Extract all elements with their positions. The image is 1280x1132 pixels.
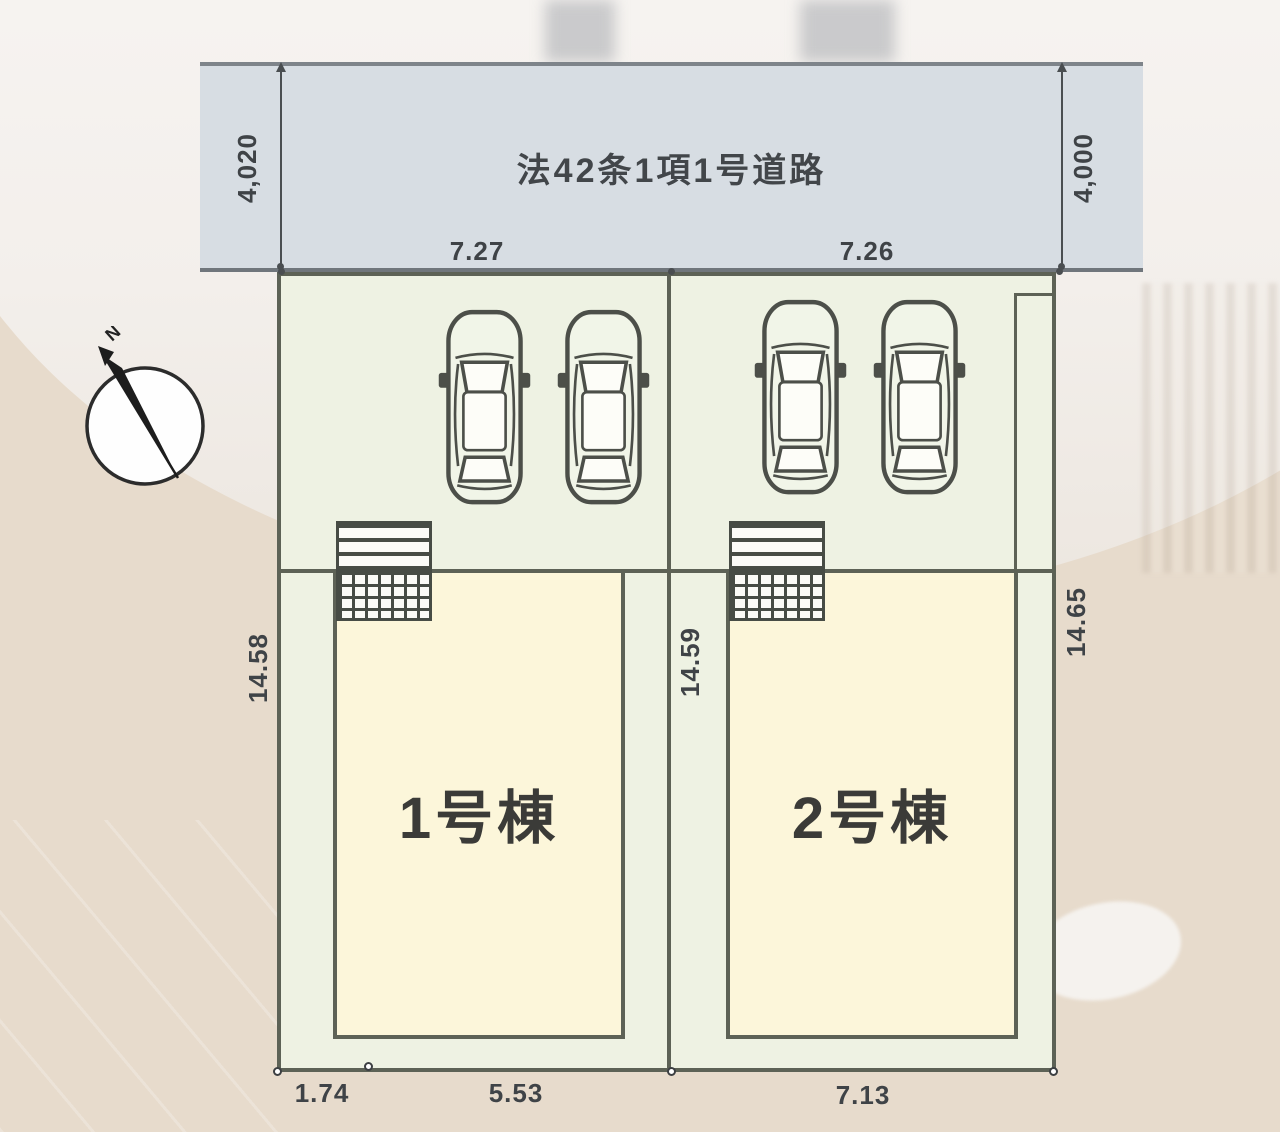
background-chair-leg [800, 0, 895, 62]
survey-point [1056, 268, 1063, 275]
background-chair-leg [545, 0, 615, 62]
dim-frontage-lot2: 7.26 [817, 234, 917, 268]
setback-strip-line-vertical [1014, 293, 1017, 573]
car-icon [753, 288, 848, 508]
car-icon [872, 288, 967, 508]
north-arrow-icon: N [78, 326, 213, 491]
entrance-porch-hatch-lot2 [729, 569, 825, 621]
entrance-steps-lot2 [729, 521, 825, 569]
road-label: 法42条1項1号道路 [200, 66, 1143, 268]
dim-depth-left: 14.58 [208, 608, 308, 728]
building-1-label: 1号棟 [399, 771, 559, 855]
survey-point-ring [1049, 1067, 1058, 1076]
survey-point-ring [667, 1067, 676, 1076]
setback-strip-line-horizontal [1014, 293, 1056, 296]
survey-point [278, 268, 285, 275]
building-1: 1号棟 [333, 569, 625, 1039]
road-band: 法42条1項1号道路 [200, 62, 1143, 272]
entrance-steps-lot1 [336, 521, 432, 569]
building-2: 2号棟 [726, 569, 1018, 1039]
background-floor-lines [0, 820, 300, 1132]
car-icon [437, 298, 532, 518]
building-2-label: 2号棟 [792, 771, 952, 855]
site-plan-screenshot: 法42条1項1号道路 1号棟 2号棟 4,020 [0, 0, 1280, 1132]
dim-depth-right: 14.65 [1026, 562, 1126, 682]
dim-road-width-right: 4,000 [1033, 118, 1133, 218]
north-label: N [101, 326, 124, 345]
survey-point-ring [273, 1067, 282, 1076]
background-blinds [1142, 283, 1280, 573]
dim-depth-center: 14.59 [640, 602, 740, 722]
dim-bottom-offset-lot1: 1.74 [272, 1076, 372, 1110]
dim-arrow-right [1057, 62, 1067, 72]
dim-arrow-left [276, 62, 286, 72]
survey-point [668, 268, 675, 275]
car-icon [556, 298, 651, 518]
dim-bottom-width-lot1: 5.53 [466, 1076, 566, 1110]
entrance-porch-hatch-lot1 [336, 569, 432, 621]
dim-frontage-lot1: 7.27 [427, 234, 527, 268]
dim-bottom-width-lot2: 7.13 [813, 1078, 913, 1112]
dim-road-width-left: 4,020 [197, 118, 297, 218]
survey-point-ring [364, 1062, 373, 1071]
